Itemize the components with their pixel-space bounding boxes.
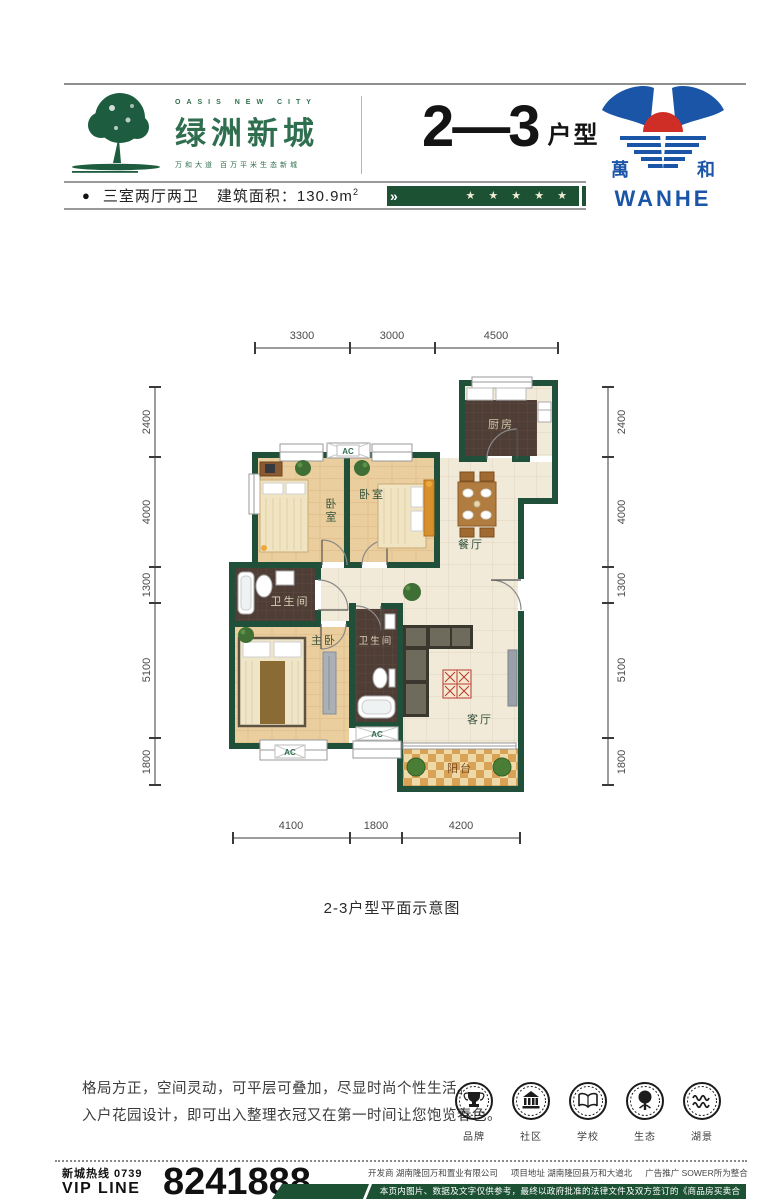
dim-top-1: 3300 <box>290 330 314 342</box>
logo-char-right: 和 <box>697 160 715 180</box>
room-label-bedroom2: 卧室 <box>359 487 385 501</box>
logo-text-en: WANHE <box>615 186 712 211</box>
room-label-kitchen: 厨房 <box>488 418 514 431</box>
star-rating: ★ ★ ★ ★ ★ <box>465 189 572 202</box>
dim-bottom-3: 4200 <box>449 820 473 832</box>
lakeview-icon <box>682 1081 722 1121</box>
feature-label: 生态 <box>623 1128 667 1143</box>
unit-number: 2—3 <box>422 98 539 156</box>
dim-left-4: 5100 <box>141 658 153 682</box>
room-label-balcony: 阳台 <box>447 761 473 775</box>
description-line1: 格局方正，空间灵动，可平层可叠加，尽显时尚个性生活。 <box>82 1076 502 1103</box>
floor-plan: AC AC AC <box>140 322 630 874</box>
disclaimer-slash <box>363 1183 373 1200</box>
stars-bar-endcap <box>582 186 586 206</box>
address-text: 项目地址 湖南隆回县万和大道北 <box>511 1167 632 1179</box>
disclaimer-text: 本页内图片、数据及文字仅供参考，最终以政府批准的法律文件及双方签订的《商品房买卖… <box>378 1184 742 1200</box>
feature-label: 社区 <box>509 1128 553 1143</box>
description-line2: 入户花园设计，即可出入整理衣冠又在第一时间让您饱览春色。 <box>82 1103 502 1130</box>
dim-bottom-2: 1800 <box>364 820 388 832</box>
school-icon <box>568 1081 608 1121</box>
footer-separator <box>55 1160 747 1162</box>
room-label-bedroom1: 卧室 <box>324 498 337 524</box>
brand-name-cn: 绿洲新城 <box>175 108 319 153</box>
dim-right-3: 1300 <box>616 573 628 597</box>
unit-suffix: 户型 <box>548 115 600 150</box>
flyer-page: OASIS NEW CITY 绿洲新城 万和大道 百万平米生态新城 2—3 户型… <box>0 0 784 1200</box>
plan-caption: 2-3户型平面示意图 <box>0 897 784 918</box>
brand-tagline: 万和大道 百万平米生态新城 <box>175 160 319 170</box>
area-text: 建筑面积：130.9m2 <box>217 185 359 206</box>
developer-info: 开发商 湖南隆回万和置业有限公司 项目地址 湖南隆回县万和大道北 广告推广 SO… <box>368 1167 748 1179</box>
header-divider <box>361 96 362 174</box>
tree-logo-icon <box>68 90 168 178</box>
chevron-icon: » <box>390 189 398 203</box>
dim-bottom-1: 4100 <box>279 820 303 832</box>
logo-char-left: 萬 <box>611 160 629 180</box>
description: 格局方正，空间灵动，可平层可叠加，尽显时尚个性生活。 入户花园设计，即可出入整理… <box>82 1076 502 1130</box>
dim-left-3: 1300 <box>141 573 153 597</box>
vip-line-label: VIP LINE <box>62 1180 143 1198</box>
community-icon <box>511 1081 551 1121</box>
room-label-master: 主卧 <box>311 634 337 647</box>
stars-bar: » ★ ★ ★ ★ ★ <box>387 186 579 206</box>
brand-block: OASIS NEW CITY 绿洲新城 万和大道 百万平米生态新城 <box>175 99 319 170</box>
feature-brand: 品牌 <box>452 1081 496 1143</box>
dim-left-2: 4000 <box>141 500 153 524</box>
trophy-icon <box>454 1081 494 1121</box>
feature-medallions: 品牌 社区 学校 生态 <box>452 1081 724 1143</box>
ecology-icon <box>625 1081 665 1121</box>
info-bar: ● 三室两厅两卫 建筑面积：130.9m2 » ★ ★ ★ ★ ★ <box>64 181 586 210</box>
dim-right-5: 1800 <box>616 750 628 774</box>
unit-title: 2—3 户型 <box>422 98 600 156</box>
room-label-bath1: 卫生间 <box>271 594 310 608</box>
ac-label: AC <box>371 730 383 739</box>
feature-community: 社区 <box>509 1081 553 1143</box>
brand-name-en: OASIS NEW CITY <box>175 99 319 106</box>
bullet-icon: ● <box>82 188 90 203</box>
developer-text: 开发商 湖南隆回万和置业有限公司 <box>368 1167 498 1179</box>
ac-label: AC <box>342 447 354 456</box>
wanhe-logo: 萬 和 WANHE <box>596 84 730 212</box>
disclaimer-bar: 本页内图片、数据及文字仅供参考，最终以政府批准的法律文件及双方签订的《商品房买卖… <box>272 1184 746 1199</box>
dim-top-3: 4500 <box>484 330 508 342</box>
dim-top-2: 3000 <box>380 330 404 342</box>
dim-right-2: 4000 <box>616 500 628 524</box>
room-label-dining: 餐厅 <box>458 537 484 551</box>
agency-text: 广告推广 SOWER所为整合 <box>645 1167 747 1179</box>
feature-school: 学校 <box>566 1081 610 1143</box>
feature-label: 学校 <box>566 1128 610 1143</box>
layout-text: 三室两厅两卫 <box>103 185 199 206</box>
dim-left-1: 2400 <box>141 410 153 434</box>
hotline-block: 新城热线 0739 VIP LINE <box>62 1168 143 1198</box>
stripes-icon <box>620 134 706 170</box>
feature-lakeview: 湖景 <box>680 1081 724 1143</box>
dim-left-5: 1800 <box>141 750 153 774</box>
feature-label: 品牌 <box>452 1128 496 1143</box>
hotline-label: 新城热线 0739 <box>62 1168 143 1180</box>
room-label-bath2: 卫生间 <box>359 635 394 647</box>
ac-label: AC <box>284 748 296 757</box>
feature-ecology: 生态 <box>623 1081 667 1143</box>
dim-right-1: 2400 <box>616 410 628 434</box>
room-label-living: 客厅 <box>467 712 493 726</box>
dim-right-4: 5100 <box>616 658 628 682</box>
feature-label: 湖景 <box>680 1128 724 1143</box>
